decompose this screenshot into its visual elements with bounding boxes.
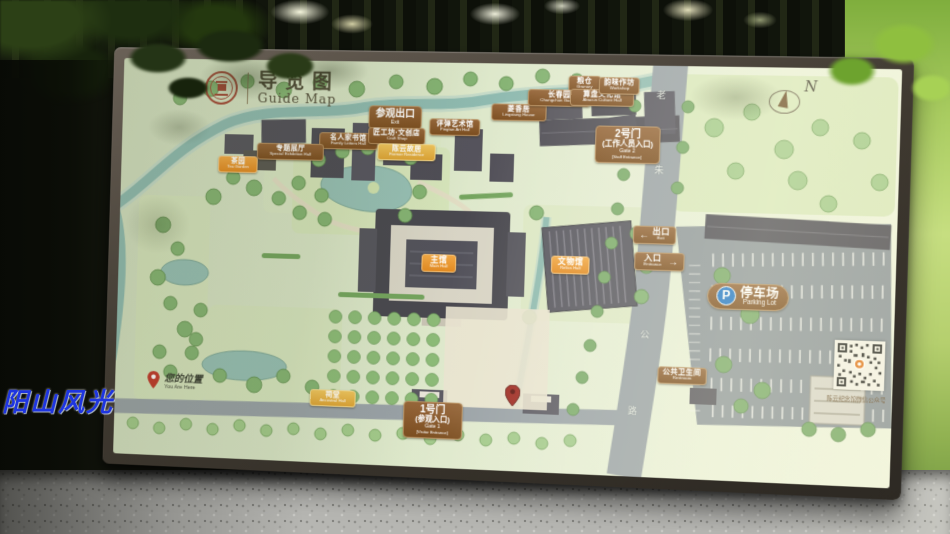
poi-special-hall: 专题展厅 Special Exhibition Hall xyxy=(257,143,325,161)
guide-map-board: 导览图 Guide Map N 参观出口 Exit 名人家书馆 Family L… xyxy=(102,47,914,500)
parking-p-icon: P xyxy=(716,286,736,306)
road-name-char-1: 老 xyxy=(656,88,666,101)
poi-visitor-exit: 参观出口 Exit xyxy=(368,105,422,129)
road-name-char-2: 朱 xyxy=(654,163,664,176)
poi-tea-garden: 茶园 Tea Garden xyxy=(218,156,258,174)
compass-icon: N xyxy=(768,82,817,116)
board-frame: 导览图 Guide Map N 参观出口 Exit 名人家书馆 Family L… xyxy=(102,47,914,500)
exit-arrow-label: ← 出口 Exit xyxy=(633,225,676,245)
map-pin-icon xyxy=(505,385,521,412)
gate2-label: 2号门 (工作人员入口) Gate 2 [Staff Entrance] xyxy=(595,125,661,164)
gate1-label: 1号门 (参观入口) Gate 1 [Visitor Entrance] xyxy=(403,401,463,441)
foreground-leaves-top-right xyxy=(812,16,950,108)
entrance-arrow-label: 入口 Entrance → xyxy=(634,252,685,272)
road-name-char-4: 路 xyxy=(628,404,638,418)
photo-watermark: 阳山风光 xyxy=(2,382,114,419)
qr-code xyxy=(833,340,885,391)
map-panel: 导览图 Guide Map N 参观出口 Exit 名人家书馆 Family L… xyxy=(113,58,902,488)
photo-of-guide-map-board: { "watermark": { "text": "阳山风光" }, "boar… xyxy=(0,0,950,534)
poi-main-hall: 主馆 Main Hall xyxy=(421,254,456,273)
poi-workshop: 韵味作坊 Workshop xyxy=(599,77,640,95)
poi-relics-hall: 文物馆 Relics Hall xyxy=(551,256,590,276)
poi-restroom: 公共卫生间 Restroom xyxy=(657,366,706,385)
poi-pingtan-hall: 评弹艺术馆 Pingtan Art Hall xyxy=(429,118,480,136)
foreground-leaves-top-left xyxy=(118,28,343,108)
parking-lot-label: P 停车场 Parking Lot xyxy=(707,282,789,311)
poi-residence: 陈云故居 Former Residence xyxy=(377,143,436,161)
arrow-right-icon: → xyxy=(668,257,679,268)
location-pin-icon xyxy=(147,371,160,389)
road-name-char-3: 公 xyxy=(640,327,650,340)
you-are-here: 您的位置 You Are Here xyxy=(147,369,203,393)
map-artwork xyxy=(113,58,902,488)
poi-ancestral-hall: 祠堂 Ancestral Hall xyxy=(310,389,356,408)
arrow-left-icon: ← xyxy=(639,229,650,240)
